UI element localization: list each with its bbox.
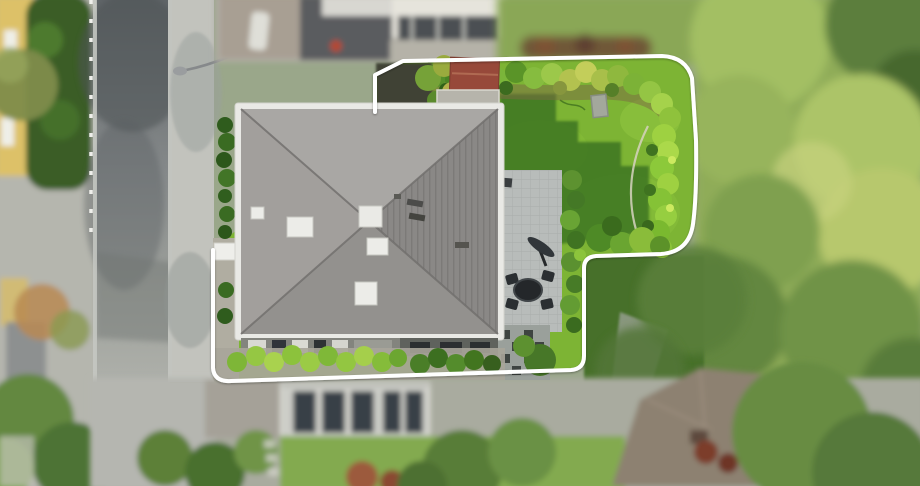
round-table (514, 279, 542, 301)
background-top-neighborhood (215, 0, 507, 64)
roof-vent (455, 242, 469, 248)
hipped-roof (241, 109, 498, 334)
aerial-photo-canvas (0, 0, 920, 486)
background-bottom-neighborhood (90, 362, 920, 486)
street-lamp-head (173, 67, 187, 76)
skylight (287, 217, 313, 237)
aerial-photo (0, 0, 920, 486)
street (78, 0, 228, 384)
main-house (235, 103, 504, 357)
skylight (251, 207, 264, 219)
neighbor-garage (281, 383, 429, 440)
left-curb (93, 0, 97, 382)
utility-cabinet (214, 243, 235, 260)
chimney (359, 206, 382, 227)
skylight (355, 282, 377, 305)
garden-shed (449, 57, 499, 92)
red-chimney (330, 40, 342, 52)
sandbox (591, 94, 608, 117)
skylight (367, 238, 388, 255)
